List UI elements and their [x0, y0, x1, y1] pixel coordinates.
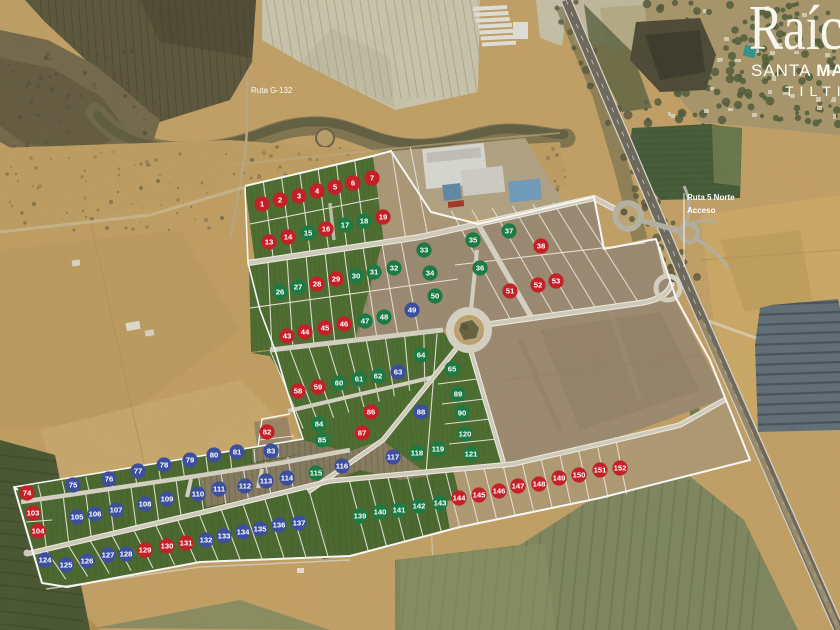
svg-text:74: 74 — [23, 489, 32, 498]
svg-text:4: 4 — [315, 187, 320, 196]
svg-text:53: 53 — [552, 277, 561, 286]
svg-text:13: 13 — [265, 238, 274, 247]
svg-text:26: 26 — [276, 288, 285, 297]
svg-text:TILTIL: TILTIL — [785, 83, 840, 99]
svg-text:79: 79 — [186, 456, 195, 465]
svg-text:137: 137 — [293, 519, 306, 528]
svg-text:151: 151 — [594, 466, 608, 475]
svg-text:118: 118 — [411, 449, 424, 458]
svg-text:129: 129 — [139, 546, 152, 555]
svg-text:88: 88 — [417, 408, 426, 417]
svg-text:119: 119 — [432, 445, 444, 454]
svg-text:77: 77 — [134, 467, 143, 476]
svg-text:14: 14 — [284, 233, 293, 242]
svg-text:143: 143 — [434, 499, 447, 508]
svg-text:Ruta G-132: Ruta G-132 — [251, 86, 293, 95]
svg-text:7: 7 — [370, 174, 374, 183]
svg-text:27: 27 — [294, 283, 303, 292]
svg-text:130: 130 — [161, 542, 174, 551]
svg-text:38: 38 — [537, 242, 546, 251]
svg-text:113: 113 — [260, 477, 272, 486]
svg-text:43: 43 — [283, 332, 292, 341]
svg-text:35: 35 — [469, 236, 478, 245]
svg-text:90: 90 — [458, 409, 467, 418]
svg-text:62: 62 — [374, 372, 383, 381]
svg-text:3: 3 — [297, 192, 301, 201]
svg-text:33: 33 — [420, 246, 429, 255]
svg-text:149: 149 — [553, 474, 566, 483]
svg-text:124: 124 — [39, 556, 53, 565]
svg-text:58: 58 — [294, 387, 303, 396]
svg-text:37: 37 — [505, 227, 514, 236]
svg-text:104: 104 — [32, 527, 46, 536]
svg-text:103: 103 — [27, 509, 40, 518]
svg-text:28: 28 — [313, 280, 322, 289]
svg-text:Ruta 5 Norte: Ruta 5 Norte — [687, 193, 735, 202]
svg-text:76: 76 — [105, 475, 114, 484]
svg-text:65: 65 — [448, 365, 457, 374]
svg-text:142: 142 — [413, 502, 426, 511]
svg-text:80: 80 — [210, 451, 219, 460]
svg-text:50: 50 — [431, 292, 440, 301]
svg-text:5: 5 — [333, 183, 338, 192]
svg-text:SANTA MARÍA: SANTA MARÍA — [751, 61, 840, 80]
svg-text:31: 31 — [370, 268, 379, 277]
svg-text:110: 110 — [192, 490, 204, 499]
svg-text:106: 106 — [89, 510, 102, 519]
svg-text:126: 126 — [81, 557, 94, 566]
svg-text:19: 19 — [379, 213, 388, 222]
svg-text:52: 52 — [534, 281, 543, 290]
svg-text:116: 116 — [336, 462, 348, 471]
svg-text:63: 63 — [394, 368, 403, 377]
svg-text:146: 146 — [493, 487, 506, 496]
svg-text:115: 115 — [310, 469, 323, 478]
svg-text:34: 34 — [426, 269, 435, 278]
svg-text:86: 86 — [367, 408, 376, 417]
svg-text:127: 127 — [102, 551, 115, 560]
svg-text:135: 135 — [254, 525, 268, 534]
svg-text:82: 82 — [263, 428, 272, 437]
svg-text:47: 47 — [361, 317, 370, 326]
svg-text:60: 60 — [335, 379, 344, 388]
svg-text:133: 133 — [218, 532, 231, 541]
svg-text:117: 117 — [387, 453, 399, 462]
svg-text:140: 140 — [374, 508, 387, 517]
svg-text:152: 152 — [614, 464, 627, 473]
svg-text:Acceso: Acceso — [687, 206, 716, 215]
svg-text:46: 46 — [340, 320, 349, 329]
svg-text:29: 29 — [332, 275, 341, 284]
svg-text:6: 6 — [351, 179, 355, 188]
svg-text:64: 64 — [417, 351, 426, 360]
svg-text:2: 2 — [278, 196, 282, 205]
svg-text:132: 132 — [200, 536, 213, 545]
svg-text:45: 45 — [321, 324, 330, 333]
svg-text:36: 36 — [476, 264, 485, 273]
svg-text:114: 114 — [281, 474, 294, 483]
svg-text:147: 147 — [512, 482, 525, 491]
svg-text:108: 108 — [139, 500, 153, 509]
svg-text:78: 78 — [160, 461, 169, 470]
svg-text:148: 148 — [533, 480, 547, 489]
svg-text:131: 131 — [180, 539, 194, 548]
svg-text:87: 87 — [358, 429, 367, 438]
svg-text:61: 61 — [355, 375, 364, 384]
svg-text:144: 144 — [453, 494, 467, 503]
svg-text:Raíces: Raíces — [749, 0, 840, 63]
svg-text:111: 111 — [213, 485, 226, 494]
svg-text:17: 17 — [341, 221, 350, 230]
svg-text:145: 145 — [473, 491, 487, 500]
svg-text:139: 139 — [354, 512, 367, 521]
svg-text:44: 44 — [301, 328, 310, 337]
svg-text:84: 84 — [315, 420, 324, 429]
svg-text:128: 128 — [120, 550, 134, 559]
svg-text:15: 15 — [304, 229, 313, 238]
svg-text:89: 89 — [454, 390, 463, 399]
svg-text:112: 112 — [239, 482, 251, 491]
svg-text:16: 16 — [322, 225, 331, 234]
svg-text:136: 136 — [273, 521, 286, 530]
svg-text:51: 51 — [506, 287, 515, 296]
svg-text:49: 49 — [408, 306, 417, 315]
svg-text:85: 85 — [318, 436, 327, 445]
svg-text:134: 134 — [237, 528, 251, 537]
svg-text:107: 107 — [110, 506, 123, 515]
svg-text:141: 141 — [393, 506, 407, 515]
svg-text:30: 30 — [352, 272, 361, 281]
svg-text:1: 1 — [260, 200, 265, 209]
svg-text:59: 59 — [314, 383, 323, 392]
svg-text:83: 83 — [267, 447, 276, 456]
svg-text:150: 150 — [573, 471, 586, 480]
svg-text:121: 121 — [465, 450, 479, 459]
svg-text:18: 18 — [360, 217, 369, 226]
svg-text:109: 109 — [161, 495, 174, 504]
svg-text:81: 81 — [233, 448, 242, 457]
svg-text:125: 125 — [60, 561, 74, 570]
svg-text:48: 48 — [380, 313, 389, 322]
svg-text:120: 120 — [459, 430, 472, 439]
svg-text:32: 32 — [390, 264, 399, 273]
svg-text:75: 75 — [69, 481, 78, 490]
svg-text:105: 105 — [71, 513, 85, 522]
